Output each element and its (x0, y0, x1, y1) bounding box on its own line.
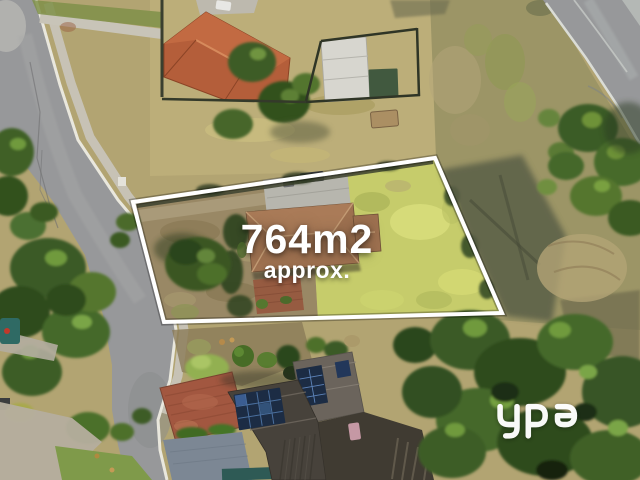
pink-car (348, 422, 361, 440)
ypa-letter-y (500, 407, 517, 436)
ypa-letter-a (558, 407, 575, 425)
trailer (370, 110, 398, 128)
ypa-letter-p (528, 407, 545, 436)
pool-cover (222, 467, 272, 480)
shed-green (369, 68, 399, 98)
solar-panels-small (335, 360, 352, 378)
ypa-logo: ypa (496, 402, 578, 442)
listing-photo: 764m2 approx. ypa (0, 0, 640, 480)
area-qualifier: approx. (187, 259, 427, 282)
area-label: 764m2 (187, 219, 427, 260)
shed-white-roof (321, 37, 370, 102)
solar-panels-main (233, 387, 285, 430)
